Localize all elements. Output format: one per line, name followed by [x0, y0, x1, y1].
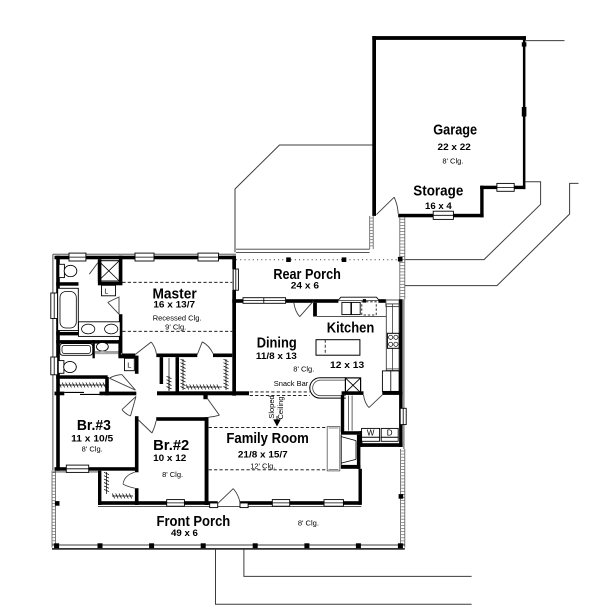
svg-text:12 x 13: 12 x 13 — [330, 360, 364, 371]
svg-text:Storage: Storage — [413, 184, 463, 200]
svg-text:10 x 12: 10 x 12 — [153, 453, 186, 464]
svg-text:Garage: Garage — [433, 123, 477, 139]
svg-text:8' Clg.: 8' Clg. — [82, 445, 103, 454]
svg-text:11/8 x 13: 11/8 x 13 — [256, 351, 297, 362]
svg-text:Family Room: Family Room — [226, 431, 308, 447]
svg-text:49 x 6: 49 x 6 — [171, 528, 198, 539]
svg-text:Sloped: Sloped — [267, 395, 276, 418]
svg-text:Br.#3: Br.#3 — [77, 418, 111, 434]
svg-text:8' Clg.: 8' Clg. — [293, 365, 314, 374]
svg-text:L: L — [127, 361, 131, 370]
svg-text:16 x 13/7: 16 x 13/7 — [153, 300, 195, 311]
svg-text:21/8 x 15/7: 21/8 x 15/7 — [238, 449, 288, 460]
svg-text:Recessed Clg.: Recessed Clg. — [153, 314, 202, 323]
svg-text:Kitchen: Kitchen — [327, 321, 375, 337]
svg-text:24 x 6: 24 x 6 — [291, 281, 319, 292]
svg-text:Ceiling: Ceiling — [276, 397, 285, 420]
svg-text:L: L — [104, 289, 108, 296]
svg-text:16 x 4: 16 x 4 — [425, 201, 452, 212]
svg-text:12' Clg.: 12' Clg. — [250, 461, 275, 470]
svg-text:Br.#2: Br.#2 — [153, 438, 189, 454]
svg-text:11 x 10/5: 11 x 10/5 — [71, 433, 114, 444]
svg-text:8' Clg.: 8' Clg. — [162, 470, 183, 479]
svg-text:8' Clg.: 8' Clg. — [442, 156, 463, 165]
svg-text:8' Clg.: 8' Clg. — [298, 519, 319, 528]
svg-text:W: W — [367, 429, 375, 438]
svg-text:22 x 22: 22 x 22 — [438, 142, 471, 153]
svg-text:D: D — [387, 429, 393, 438]
svg-text:9' Clg.: 9' Clg. — [165, 322, 186, 331]
svg-text:Dining: Dining — [257, 336, 297, 352]
svg-text:Snack Bar: Snack Bar — [274, 379, 309, 388]
